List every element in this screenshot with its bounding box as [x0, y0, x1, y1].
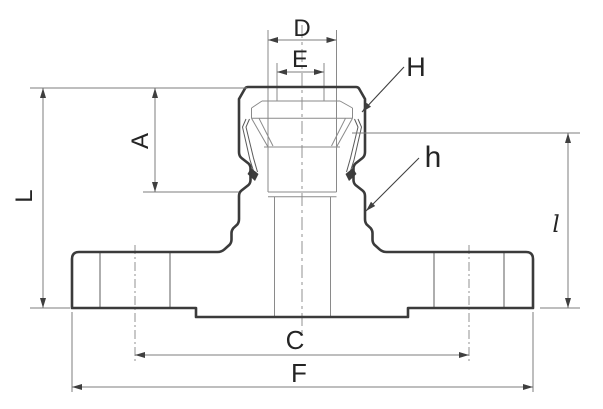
dimension-c-arrow-right — [459, 352, 469, 358]
label-a: A — [127, 133, 154, 149]
label-f: F — [291, 358, 307, 388]
drawing-canvas: D E A L l C F — [0, 0, 603, 409]
dimension-a: A — [127, 88, 158, 192]
callout-h-lower-leader — [366, 158, 419, 211]
dimension-d-arrow-left — [268, 37, 278, 43]
callout-h-upper: H — [362, 52, 426, 112]
dimension-l-upper: L — [11, 88, 46, 308]
dimension-e-arrow-right — [314, 69, 324, 75]
dimension-c-arrow-left — [135, 352, 145, 358]
dimension-f-arrow-right — [523, 384, 533, 390]
dimension-d: D — [268, 15, 337, 43]
label-l-upper: L — [11, 189, 38, 202]
dimension-a-arrow-top — [152, 88, 158, 98]
label-d: D — [293, 15, 310, 42]
dimension-e: E — [277, 46, 324, 75]
dimension-d-arrow-right — [327, 37, 337, 43]
label-c: C — [286, 325, 305, 355]
dimension-l-upper-arrow-bottom — [40, 298, 46, 308]
callout-h-lower: h — [366, 141, 441, 211]
dimension-l-lower-arrow-top — [565, 133, 571, 143]
dimension-l-lower-arrow-bottom — [565, 298, 571, 308]
dimension-e-arrow-left — [277, 69, 287, 75]
dimension-l-upper-arrow-top — [40, 88, 46, 98]
dimension-f-arrow-left — [72, 384, 82, 390]
dimension-c: C — [135, 325, 469, 358]
fitting-section-drawing: D E A L l C F — [0, 0, 603, 409]
label-e: E — [292, 46, 308, 73]
label-h-lower: h — [425, 141, 442, 174]
dimension-f: F — [72, 358, 533, 390]
extension-lines — [30, 88, 580, 392]
dimension-l-lower: l — [552, 133, 571, 308]
label-h-upper: H — [406, 52, 426, 82]
label-l-lower: l — [552, 212, 559, 238]
dimension-a-arrow-bottom — [152, 182, 158, 192]
